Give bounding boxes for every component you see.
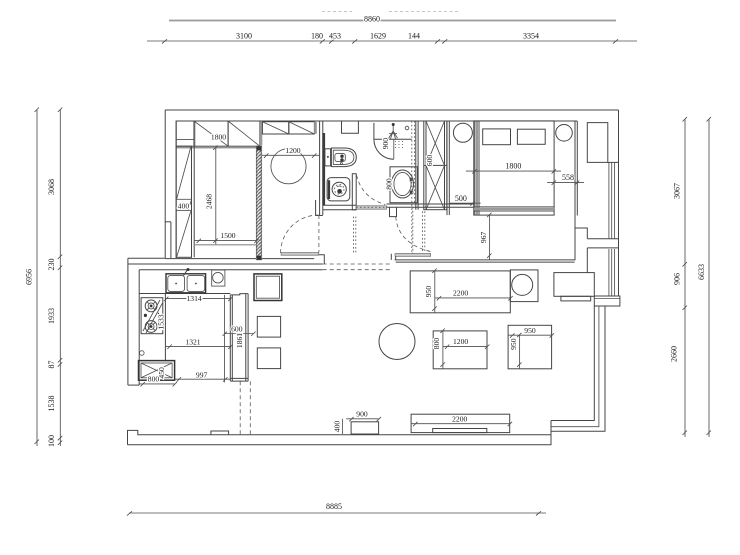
svg-text:2200: 2200 <box>453 288 468 297</box>
svg-text:906: 906 <box>673 273 682 285</box>
svg-text:967: 967 <box>479 232 488 244</box>
svg-text:800: 800 <box>148 375 160 384</box>
svg-text:1861: 1861 <box>235 333 244 348</box>
svg-text:600: 600 <box>425 155 434 167</box>
svg-text:900: 900 <box>381 138 390 150</box>
svg-text:2200: 2200 <box>452 414 467 423</box>
svg-text:144: 144 <box>408 32 420 41</box>
svg-text:87: 87 <box>47 361 56 369</box>
svg-text:3100: 3100 <box>236 32 252 41</box>
svg-text:950: 950 <box>509 338 518 350</box>
svg-text:3068: 3068 <box>47 179 56 195</box>
svg-text:180: 180 <box>311 32 323 41</box>
svg-text:1314: 1314 <box>187 294 202 303</box>
svg-text:558: 558 <box>562 173 574 182</box>
svg-text:1533: 1533 <box>157 314 166 329</box>
svg-text:1200: 1200 <box>285 146 300 155</box>
svg-text:3067: 3067 <box>673 183 682 199</box>
svg-text:1800: 1800 <box>211 132 226 141</box>
svg-text:2660: 2660 <box>670 346 679 362</box>
svg-text:100: 100 <box>47 435 56 447</box>
svg-text:500: 500 <box>455 194 467 203</box>
svg-text:1629: 1629 <box>370 32 386 41</box>
svg-text:6956: 6956 <box>25 269 34 285</box>
svg-text:600: 600 <box>231 325 243 334</box>
svg-text:2468: 2468 <box>205 194 214 209</box>
svg-text:3354: 3354 <box>523 32 539 41</box>
svg-text:400: 400 <box>178 201 190 210</box>
svg-text:950: 950 <box>424 286 433 298</box>
svg-text:900: 900 <box>356 410 368 419</box>
svg-text:8885: 8885 <box>326 502 342 511</box>
svg-text:8860: 8860 <box>364 15 380 24</box>
svg-text:1800: 1800 <box>505 162 521 171</box>
svg-text:1538: 1538 <box>47 396 56 412</box>
svg-text:400: 400 <box>333 421 342 433</box>
svg-text:230: 230 <box>47 259 56 271</box>
svg-text:6633: 6633 <box>697 264 706 280</box>
svg-text:1200: 1200 <box>453 337 468 346</box>
svg-text:1933: 1933 <box>47 308 56 324</box>
svg-text:800: 800 <box>432 338 441 350</box>
svg-text:997: 997 <box>196 370 208 379</box>
svg-text:1500: 1500 <box>220 231 235 240</box>
svg-text:1321: 1321 <box>185 337 200 346</box>
svg-text:800: 800 <box>385 178 394 190</box>
svg-text:453: 453 <box>329 32 341 41</box>
svg-text:950: 950 <box>524 326 536 335</box>
